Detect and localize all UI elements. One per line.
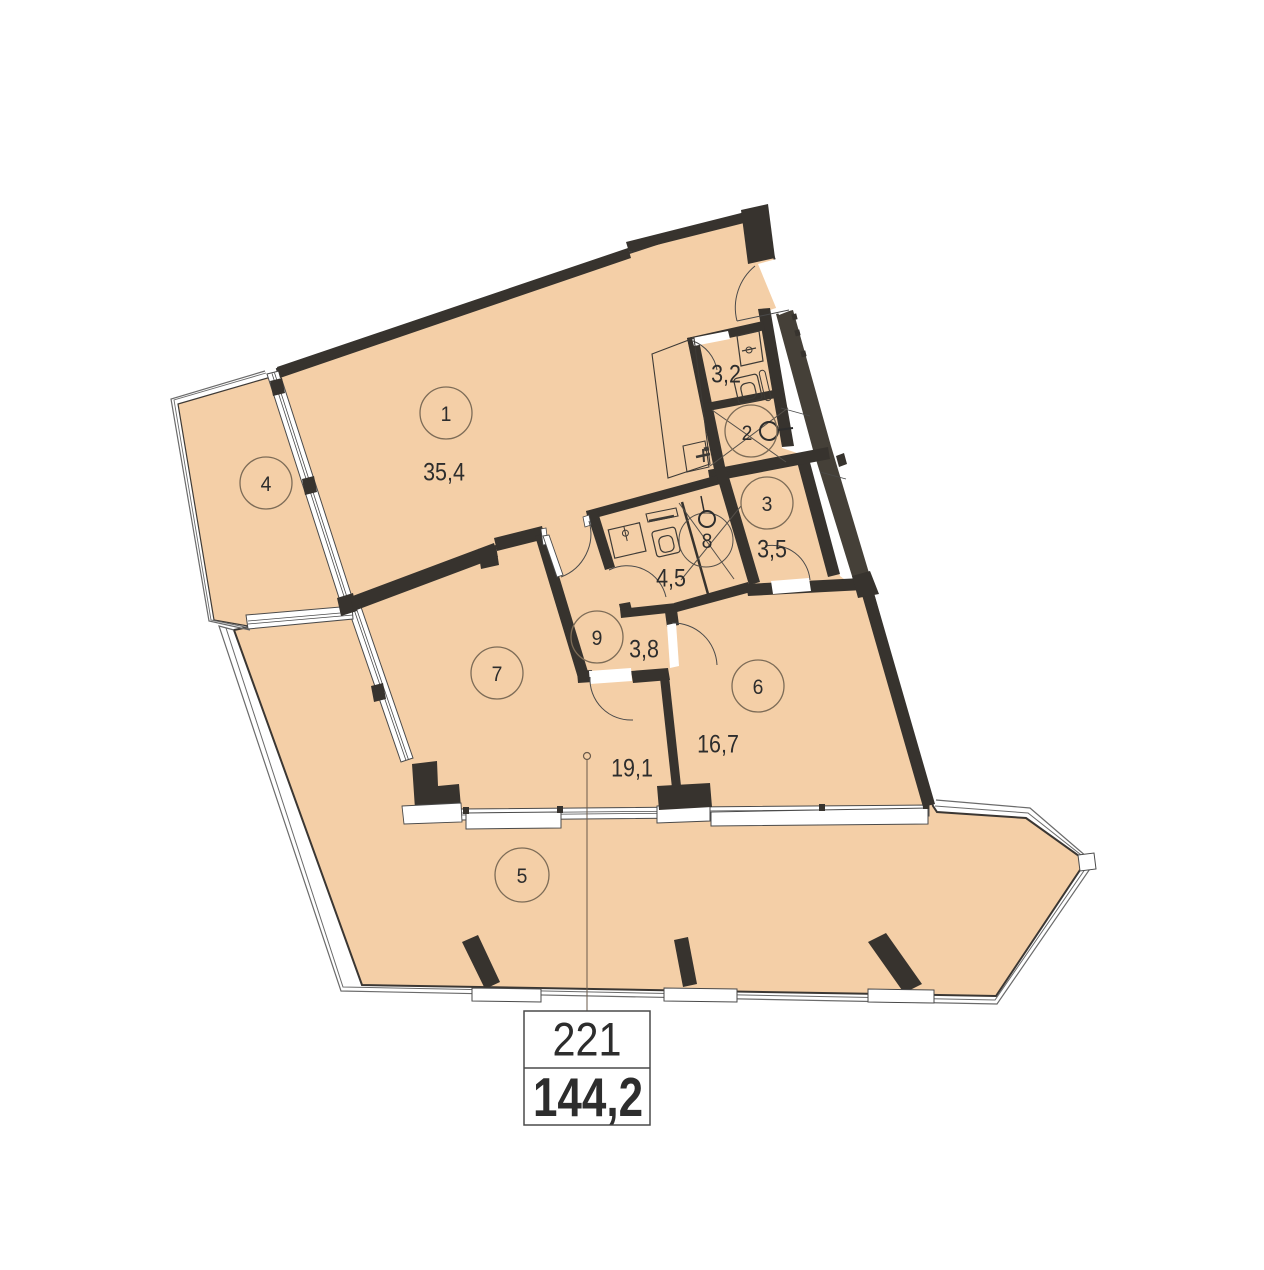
svg-text:19,1: 19,1 [611,754,653,782]
svg-text:144,2: 144,2 [533,1066,643,1128]
svg-text:1: 1 [441,402,452,426]
svg-text:221: 221 [553,1014,622,1066]
svg-text:3,8: 3,8 [629,635,659,663]
svg-text:9: 9 [592,626,603,650]
svg-text:3,5: 3,5 [757,535,787,563]
svg-text:3,2: 3,2 [711,360,741,388]
svg-text:3: 3 [762,492,773,516]
svg-text:16,7: 16,7 [697,730,739,758]
svg-text:4,5: 4,5 [656,564,686,592]
svg-text:2: 2 [742,421,753,445]
svg-text:4: 4 [261,472,272,496]
svg-text:7: 7 [492,662,503,686]
svg-text:35,4: 35,4 [423,458,465,486]
svg-text:5: 5 [517,864,528,888]
svg-text:8: 8 [702,529,713,553]
svg-text:6: 6 [753,675,764,699]
